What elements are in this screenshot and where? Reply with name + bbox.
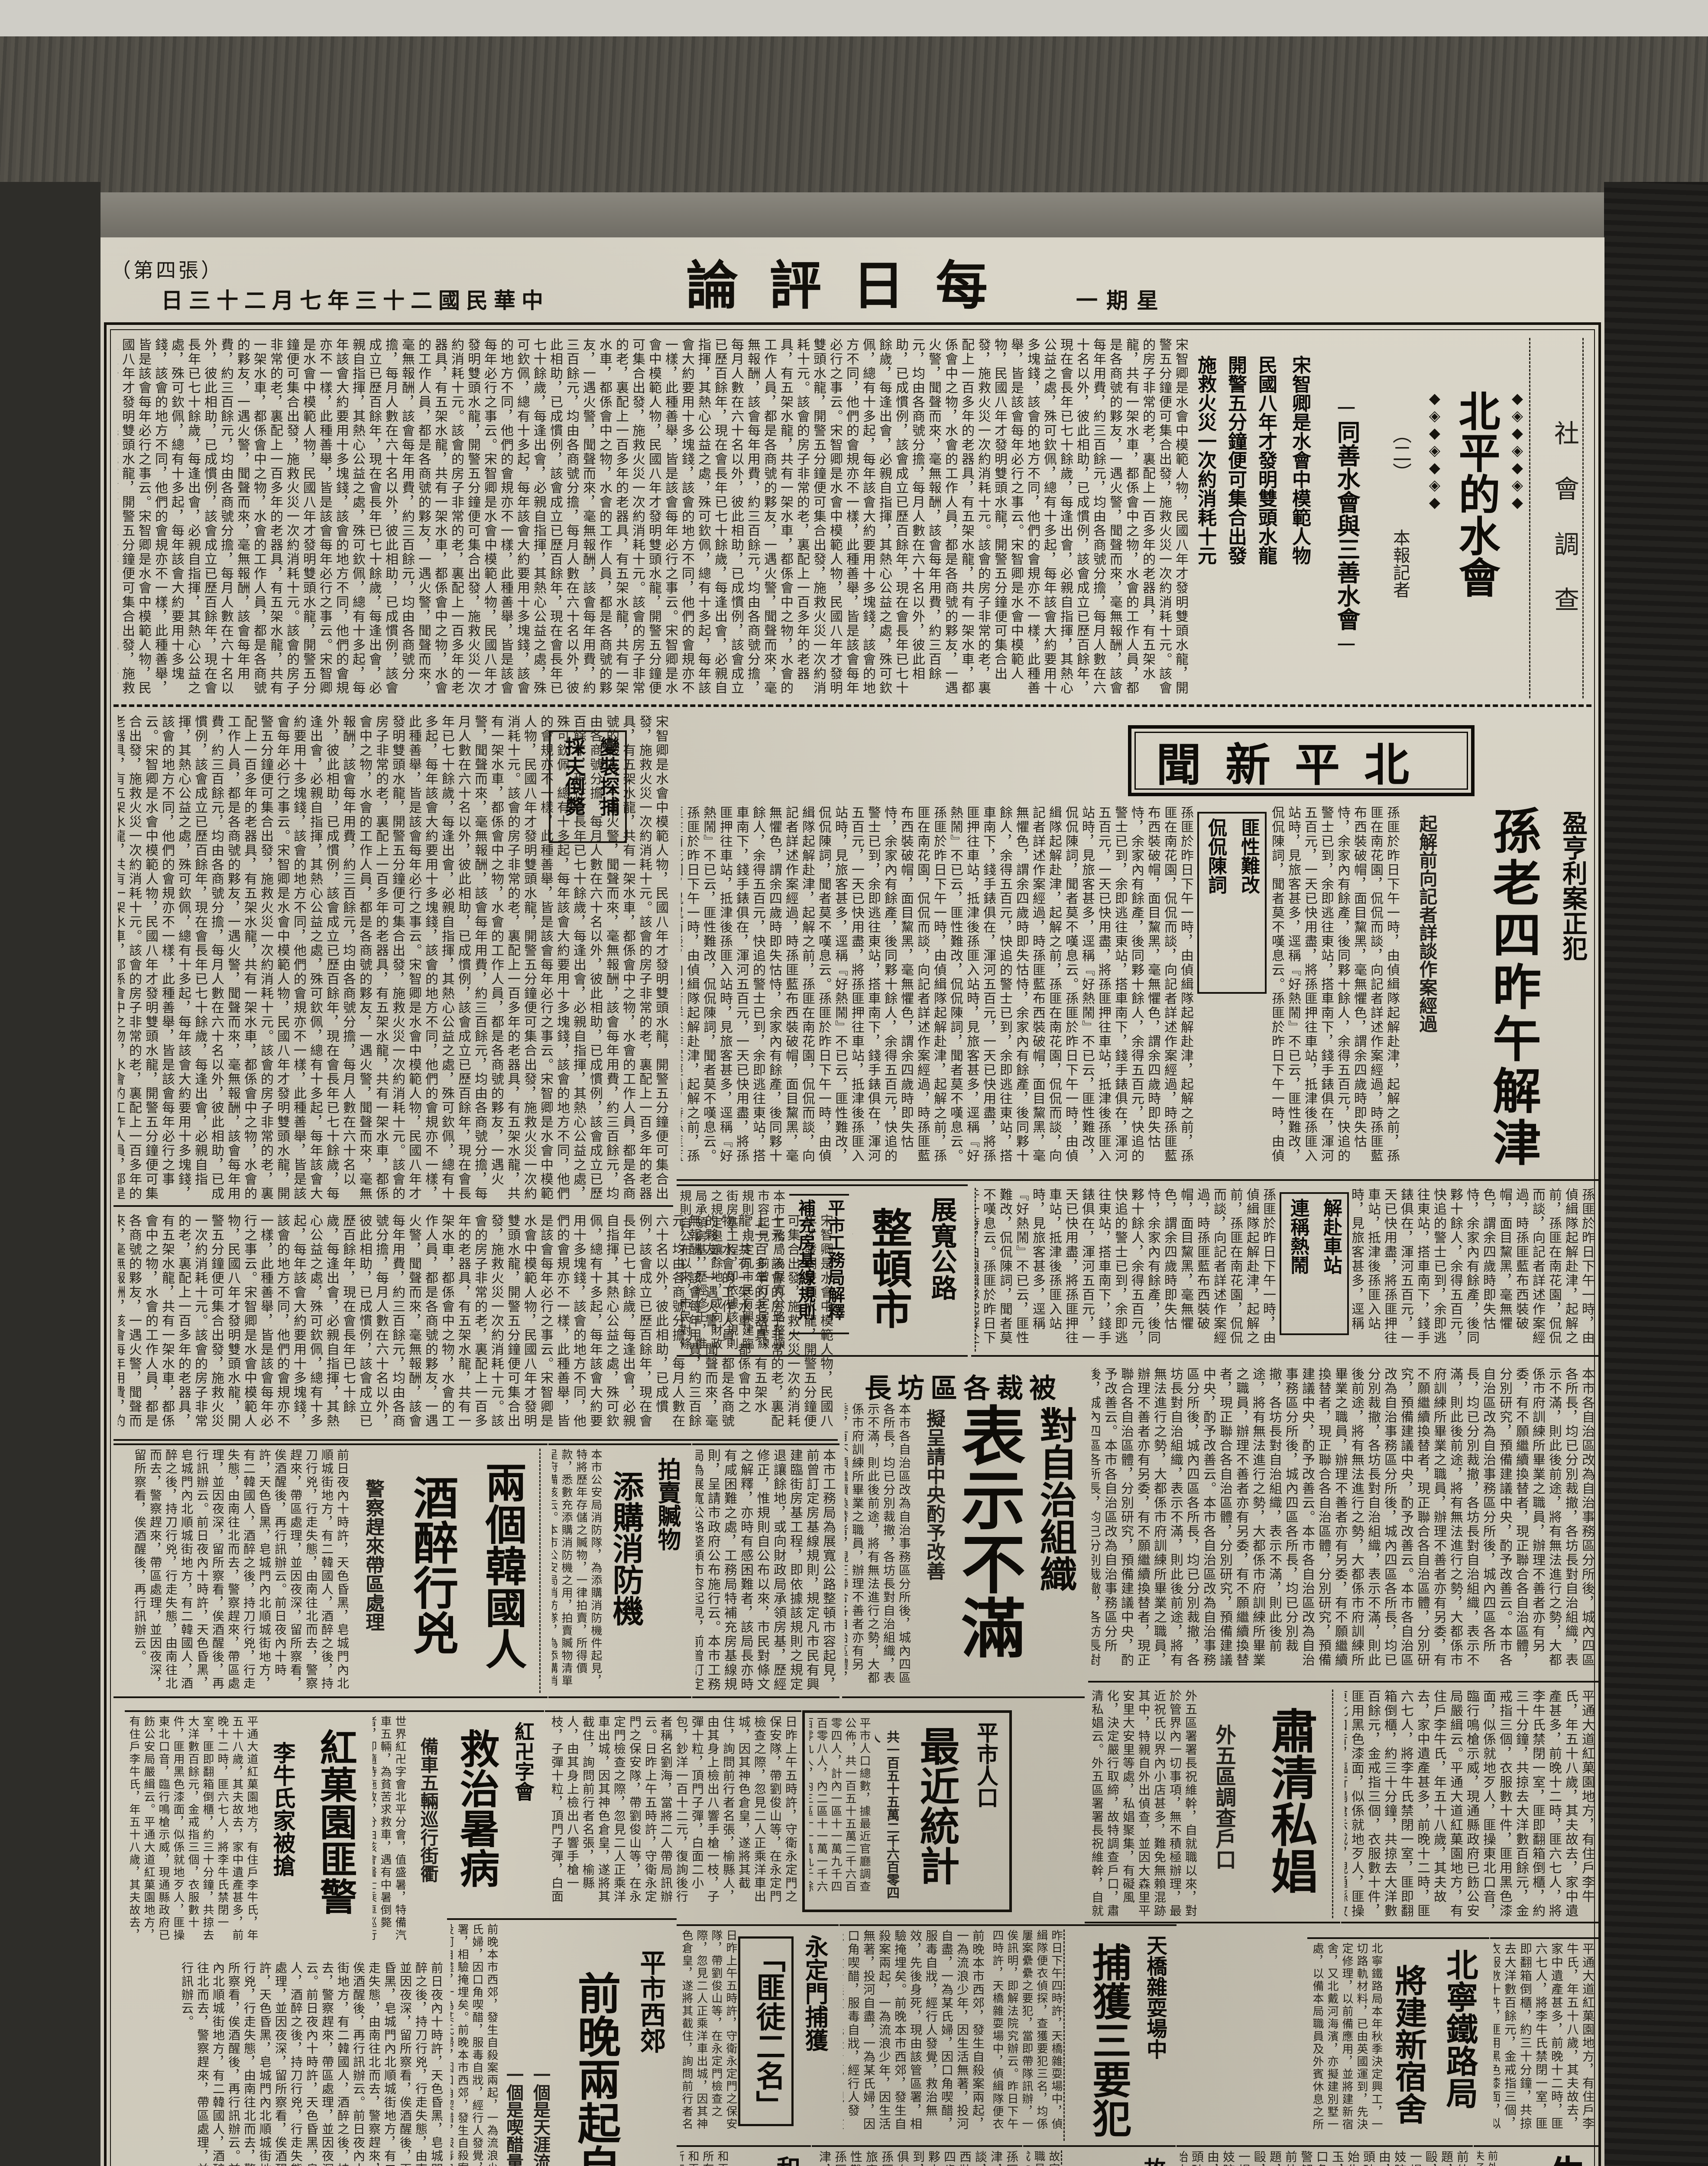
news-body-filler-mid: 本市工務局為展寬公路整頓市容起見，前曾訂定房基線規則，規定凡市民有興建臨街房基工…: [692, 1443, 839, 1698]
article-yongdingmen-capture: 永定門捕獲 「匪徒二名」 日昨上午五時許，守衛永定門之保安隊，帶劉俊山等，在永定…: [677, 1924, 839, 2144]
suicides-subhead-2: 一個是喫醋量窄的女人: [499, 1923, 526, 2166]
sun-box2-left: 連稱熱鬧: [1284, 1198, 1312, 1329]
headline-three-criminals-caught: 捕獲三要犯: [1063, 1929, 1136, 2141]
headline-wangfu-auction: 和王府拍賣: [768, 2150, 804, 2166]
beiping-news-banner: 北平新聞: [1128, 725, 1475, 796]
headline-express-dissatisfaction: 表示不滿: [951, 1403, 1034, 1694]
sun-laosi-article-tail: 孫匪於昨日下午一時，由偵緝隊起解赴津，起解之前，孫匪在南花園，侃侃而談，向記者詳…: [971, 1184, 1598, 1357]
article-fang-chiefs-dissatisfied: 被裁各區坊長 對自治組織 表示不滿 擬呈請中央酌予改善 本市各自治區改為自治事務…: [842, 1364, 1085, 1698]
headline-two-suicide-cases: 前晚兩起自殺案: [553, 1923, 626, 2166]
kicker-yongdingmen: 永定門捕獲: [797, 1929, 832, 2141]
beiping-news-banner-text: 北平新聞: [1156, 728, 1446, 794]
sun-subhead-box-defiant: 匪性難改 侃侃陳詞: [1197, 812, 1267, 994]
kicker-city-population: 平市人口: [969, 1717, 1001, 1905]
inner-subhead-box-disguise: 變裝探捕 採夫倒斃: [549, 730, 627, 843]
redcross-body: 世界紅卍字會北平分會，值盛暑，特備汽車五輛，為貧苦求救車，遇有中暑倒斃者，即隨時…: [373, 1715, 407, 1954]
headline-caused-brawl: 引起兇毆: [1498, 2150, 1543, 2166]
photo-top-margin: [0, 0, 1708, 36]
article-city-appearance: 展寬公路 整頓市容 平市工務局解釋 補充房基線規則 本市工務局為展寬公路整頓市容…: [677, 1184, 968, 1357]
news-body-filler-right-mid: 本市各自治區改為自治事務區分所後，城內四區各所長，均已分別裁撤，各坊長對自治組織…: [1088, 1364, 1598, 1683]
railway-body: 北寧鐵路局本年秋季決定興工，一切路軌材料，已由英國運到，先決定修理，以前備應用，…: [1311, 1942, 1384, 2141]
article-wangfu-auction: 和王府拍賣 古玩字畫 和王府因債務關係，經法院判決後，府內所存古玩字畫，定期拍賣…: [677, 2145, 811, 2166]
filler-text-mid: 本市工務局為展寬公路整頓市容起見，前曾訂定房基線規則，規定凡市民有興建臨街房基工…: [696, 1449, 836, 1693]
lead-line-1: 宋智卿是水會中模範人物: [1283, 338, 1313, 698]
kicker-west-suburbs: 平市西郊: [630, 1923, 670, 2166]
headline-antiques-calligraphy: 古玩字畫: [729, 2150, 765, 2166]
filler-text-bottom-right: 前外大柵欄某妓院妓女紅玉，因贖身問題，失了自由，與人發生口角，引起兇毆，被打得頭…: [1180, 2150, 1469, 2166]
byline-reporter: 本報記者: [1390, 529, 1410, 598]
article-tianqiao-arrests: 天橋雜耍場中 捕獲三要犯 昨日下午四時許，天橋雜耍場中，偵緝隊便衣偵探，查獲要犯…: [989, 1924, 1176, 2144]
article-water-societies: 社會調查 ◆◈◆◈◆◈◆ 北平的水會 ◆◈◆◈◆◈◆ （二） 本報記者 ─同善水…: [113, 332, 1591, 707]
water-societies-continued: 宋智卿是水會中模範人物，民國八年才發明雙頭水龍，開警五分鐘便可集合出發，施救火災…: [113, 710, 673, 1207]
kicker-auction-loot: 拍賣贓物: [651, 1449, 684, 1693]
fang-body: 本市各自治區改為自治事務區分所後，城內四區各所長，均已分別裁撤，各坊長對自治組織…: [845, 1403, 911, 1694]
headline-sun-laosi: 孫老四昨午解津: [1443, 806, 1547, 1175]
prostitution-body: 外五區署署長祝維幹，自就職以來，對於管界內一切事項，無不積極辦理，最近祝氏以界內…: [1088, 1689, 1198, 1918]
headline-two-koreans: 兩個韓國人: [467, 1449, 541, 1693]
tianqiao-body: 昨日下午四時許，天橋雜耍場中，偵緝隊便衣偵探，查獲要犯三名，均係屢案纍纍之要犯，…: [992, 1929, 1063, 2141]
filler-text-right-mid: 本市各自治區改為自治事務區分所後，城內四區各所長，均已分別裁撤，各坊長對自治組織…: [1092, 1367, 1595, 1677]
auction-body: 本市公安局消防隊，為添購消防機件起見，特將歷年存儲之贓物，一律拍賣，所得價款，悉…: [552, 1449, 603, 1693]
headline-reorganization: 進行改組: [1061, 2150, 1133, 2166]
sun-body-a: 孫匪於昨日下午一時，由偵緝隊起解赴津，起解之前，孫匪在南花園，侃侃而談，向記者詳…: [1270, 806, 1400, 1175]
sun-box2-right: 解赴車站: [1317, 1198, 1345, 1329]
filler-text-bottom-left: 前日夜內十時許，天色昏黑，皂城門內北順城街地方，有二韓國人，酒醉之後，持刀行兇，…: [128, 1962, 444, 2166]
newspaper-page: （第四張） 中華民國二十三年七月二十三日 每日評論 星期一 社會調查 ◆◈◆◈◆…: [100, 237, 1604, 2166]
headline-lost-freedom: 失了自由: [1546, 2150, 1591, 2166]
photo-top-shadow-band: [0, 36, 1708, 192]
korean-subhead: 警察趕來帶區處理: [353, 1449, 387, 1693]
prostitution-subhead: 外五區調查戶口: [1201, 1689, 1238, 1918]
sun-box1-left: 侃侃陳詞: [1202, 818, 1229, 988]
news-body-filler-center-low: 日昨上午五時許，守衛永定門之保安隊，帶劉俊山等，在永定門檢查之際，忽見二人正乘洋…: [545, 1710, 801, 1912]
headline-tidy-city: 整頓市容: [852, 1190, 917, 1352]
headline-beiping-water-societies: 北平的水會: [1445, 390, 1506, 698]
lead-line-4: 施救火災一次約消耗十元: [1189, 338, 1219, 698]
ornament-diamonds-right-icon: ◆◈◆◈◆◈◆: [1508, 390, 1526, 698]
photo-right-band: [1604, 182, 1708, 2166]
filler-text-gap: 前晚本市西郊，發生自殺案兩起，一為流浪少年，因生活無著，投河自盡，一為某氏婦，因…: [843, 1929, 985, 2141]
article-two-suicides: 平市西郊 前晚兩起自殺案 一個是天涯流浪的少年 一個是喫醋量窄的女人 前晚本市西…: [447, 1918, 677, 2166]
article-two-koreans: 兩個韓國人 酒醉行兇 警察趕來帶區處理 前日夜內十時許，天色昏黑，皂城門內北順城…: [113, 1443, 548, 1698]
news-body-filler-gap: 前晚本市西郊，發生自殺案兩起，一為流浪少年，因生活無著，投河自盡，一為某氏婦，因…: [839, 1924, 989, 2144]
news-body-filler-bottom-mid: 孫匪於昨日下午一時，由偵緝隊起解赴津，起解之前，孫匪在南花園，侃侃而談，向記者詳…: [812, 2145, 1022, 2166]
ornament-diamonds-left-icon: ◆◈◆◈◆◈◆: [1426, 390, 1443, 698]
filler-text-center-low: 日昨上午五時許，守衛永定門之保安隊，帶劉俊山等，在永定門檢查之際，忽見二人正乘洋…: [548, 1715, 798, 1909]
korean-body: 前日夜內十時許，天色昏黑，皂城門內北順城街地方，有二韓國人，酒醉之後，持刀行兇，…: [117, 1449, 350, 1693]
news-body-filler-rail-right: 平通大道紅菓園地方，有住戶李牛氏，年五十八歲，其夫故去，家中遺產甚多，前晚十二時…: [1490, 1937, 1598, 2144]
wangfu-body: 和王府因債務關係，經法院判決後，府內所存古玩字畫，定期拍賣，聞者甚眾云。和王府因…: [680, 2150, 729, 2166]
headline-buy-fire-engines: 添購消防機: [603, 1449, 648, 1693]
sun-box1-right: 匪性難改: [1235, 818, 1262, 988]
lead-line-3: 開警五分鐘便可集合出發: [1219, 338, 1249, 698]
population-subhead-total: 共一百五十五萬二千六百零四人: [875, 1717, 901, 1905]
headline-beining-railway-bureau: 北寧鐵路局: [1435, 1942, 1482, 2141]
eyebrow-yinhengli-case: 盈亨利案正犯: [1551, 806, 1591, 1175]
sun-body-b: 孫匪於昨日下午一時，由偵緝隊起解赴津，起解之前，孫匪在南花園，侃侃而談，向記者詳…: [681, 806, 1194, 1175]
inner-subhead-right: 變裝探捕: [594, 736, 622, 837]
article-palace-museum: 故宮博物院 進行改組 故宮博物院現正進行改組，所有院內各處職員，均將分別去留，改…: [1023, 2145, 1176, 2166]
filler-text-right-low: 平通大道紅菓園地方，有住戶李牛氏，年五十八歲，其夫故去，家中遺產甚多，前晚十二時…: [1345, 1689, 1595, 1918]
sun-subhead-box-station: 解赴車站 連稱熱鬧: [1280, 1192, 1349, 1335]
kicker-widen-roads: 展寬公路: [921, 1190, 961, 1352]
ornamented-headline-block: ◆◈◆◈◆◈◆ 北平的水會 ◆◈◆◈◆◈◆: [1417, 338, 1526, 698]
filler-text-bottom-mid: 孫匪於昨日下午一時，由偵緝隊起解赴津，起解之前，孫匪在南花園，侃侃而談，向記者詳…: [815, 2150, 1019, 2166]
news-body-filler-right-low: 平通大道紅菓園地方，有住戶李牛氏，年五十八歲，其夫故去，家中遺產甚多，前晚十二時…: [1341, 1686, 1598, 1923]
article-beining-railway: 北寧鐵路局 將建新宿舍 北寧鐵路局本年秋季決定興工，一切路軌材料，已由英國運到，…: [1307, 1937, 1489, 2144]
article-clean-up-prostitution: 肅清私娼 外五區調查戶口 外五區署署長祝維幹，自就職以來，對於管界內一切事項，無…: [1085, 1686, 1340, 1923]
subhead-tongshan-sanshan: ─同善水會與三善水會─: [1320, 338, 1364, 698]
bandits-body: 平通大道紅菓園地方，有住戶李牛氏，年五十八歲，其夫故去，家中遺產甚多，前晚十二時…: [128, 1715, 259, 1954]
kicker-palace-museum: 故宮博物院: [1137, 2150, 1169, 2166]
article-sun-laosi-extradited: 盈亨利案正犯 孫老四昨午解津 起解前向記者詳談作案經過 孫匪於昨日下午一時，由偵…: [677, 801, 1598, 1181]
news-body-filler-bottom-left: 前日夜內十時許，天色昏黑，皂城門內北順城街地方，有二韓國人，酒醉之後，持刀行兇，…: [125, 1958, 447, 2166]
headline-part-and-byline: （二） 本報記者: [1371, 338, 1414, 698]
roads-subhead-box: 平市工務局解釋 補充房基線規則: [789, 1194, 849, 1334]
eyebrow-dismissed-fang-chiefs: 被裁各區坊長: [845, 1366, 1082, 1403]
roads-subhead-right: 平市工務局解釋: [822, 1199, 847, 1329]
masthead-title: 每日評論: [100, 243, 1604, 319]
sun-body-c: 孫匪於昨日下午一時，由偵緝隊起解赴津，起解之前，孫匪在南花園，侃侃而談，向記者詳…: [1352, 1188, 1595, 1352]
article-population-statistics: 平市人口 最近統計 共一百五十五萬二千六百零四人 平市人口總數，據最近官廳調查公…: [802, 1710, 1012, 1912]
inner-subhead-left: 採夫倒斃: [559, 736, 588, 837]
population-body: 平市人口總數，據最近官廳調查公佈，共一百五十五萬二千六百零四人，計內一區十一萬九…: [809, 1717, 872, 1905]
roads-body: 本市工務局為展寬公路整頓市容起見，前曾訂定房基線規則，規定凡市民有興建臨街房基工…: [680, 1190, 786, 1352]
suicides-body: 前晚本市西郊，發生自殺案兩起，一為流浪少年，因生活無著，投河自盡，一為某氏婦，因…: [450, 1923, 499, 2166]
article-lost-freedom-brawl: 失了自由 引起兇毆 前外大柵欄某妓院妓女紅玉，因贖身問題，失了自由，與人發生口角…: [1474, 2145, 1598, 2166]
news-body-filler-bottom-right: 前外大柵欄某妓院妓女紅玉，因贖身問題，失了自由，與人發生口角，引起兇毆，被打得頭…: [1176, 2145, 1473, 2166]
headline-bandit-alarm: 紅菓園匪警: [301, 1715, 362, 1954]
headline-drunken-violence: 酒醉行兇: [390, 1449, 464, 1693]
article-hongguoyuan-bandits: 紅菓園匪警 李牛氏家被搶 平通大道紅菓園地方，有住戶李牛氏，年五十八歲，其夫故去…: [125, 1710, 369, 1957]
article-fire-engines: 拍賣贓物 添購消防機 本市公安局消防隊，為添購消防機件起見，特將歷年存儲之贓物，…: [548, 1443, 691, 1698]
redcross-subhead: 備車五輛巡行街衢: [411, 1715, 441, 1954]
headline-new-dormitories: 將建新宿舍: [1384, 1942, 1431, 2141]
lead-line-2: 民國八年才發明雙頭水龍: [1249, 338, 1280, 698]
subhead-sun-interview: 起解前向記者詳談作案經過: [1403, 806, 1440, 1175]
newspaper-scan-photo: （第四張） 中華民國二十三年七月二十三日 每日評論 星期一 社會調查 ◆◈◆◈◆…: [0, 0, 1708, 2166]
headline-self-govt-org: 對自治組織: [1034, 1403, 1082, 1694]
fang-subhead: 擬呈請中央酌予改善: [915, 1403, 948, 1694]
freedom-body: 前外大柵欄某妓院妓女紅玉，因贖身問題，失了自由，與人發生口角，引起兇毆，被打得頭…: [1477, 2150, 1498, 2166]
masthead-weekday: 星期一: [1076, 283, 1167, 315]
headline-latest-statistics: 最近統計: [904, 1717, 965, 1905]
yongding-body: 日昨上午五時許，守衛永定門之保安隊，帶劉俊山等，在永定門檢查之際，忽見二人正乘洋…: [680, 1929, 738, 2141]
photo-top-fade: [0, 192, 1708, 238]
sun-body-d: 孫匪於昨日下午一時，由偵緝隊起解赴津，起解之前，孫匪在南花園，侃侃而談，向記者詳…: [975, 1188, 1276, 1352]
water-societies-body-text: 宋智卿是水會中模範人物，民國八年才發明雙頭水龍，開警五分鐘便可集合出發，施救火災…: [118, 338, 1189, 698]
palace-body: 故宮博物院現正進行改組，所有院內各處職員，均將分別去留，改組就緒後，即行成立云。…: [1027, 2150, 1061, 2166]
kicker-tianqiao-grounds: 天橋雜耍場中: [1139, 1929, 1170, 2141]
roads-subhead-left: 補充房基線規則: [793, 1199, 818, 1329]
headline-two-bandits: 「匪徒二名」: [738, 1936, 794, 2126]
headline-suppress-prostitutes: 肅清私娼: [1245, 1689, 1333, 1918]
photo-left-band: [0, 182, 100, 2166]
part-number: （二）: [1390, 425, 1411, 482]
suicides-subhead-1: 一個是天涯流浪的少年: [526, 1923, 553, 2166]
filler-text-rail-right: 平通大道紅菓園地方，有住戶李牛氏，年五十八歲，其夫故去，家中遺產甚多，前晚十二時…: [1494, 1942, 1595, 2141]
section-label-social-survey: 社會調查: [1529, 338, 1584, 698]
bandits-subhead: 李牛氏家被搶: [259, 1715, 298, 1954]
